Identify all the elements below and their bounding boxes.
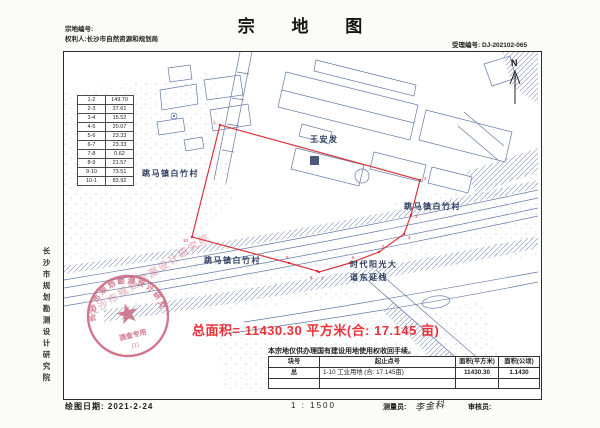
rights-holder: 权利人:长沙市自然资源和规划局 (65, 35, 158, 45)
seal-star (115, 301, 140, 325)
north-label: N (511, 58, 518, 68)
seal-inner-text: 调查专用 (118, 327, 147, 343)
place-label: 跳马镇白竹村 (404, 201, 461, 211)
drawing-date: 绘图日期: 2021-2-24 (65, 401, 153, 412)
col-area-ha: 面积(公顷) (499, 357, 540, 368)
col-area-sqm: 面积(平方米) (456, 357, 499, 368)
cell-area-sqm: 11430.30 (456, 368, 499, 379)
institute-name-vertical: 长沙市规划勘测设计研究院 (41, 247, 52, 385)
segment-row: 8-921.57 (78, 159, 134, 168)
parcel-number-label: 宗地编号: (65, 25, 158, 35)
svg-text:2: 2 (424, 176, 427, 181)
segment-row: 1-2149.70 (78, 96, 134, 105)
summary-empty-row (269, 379, 540, 389)
place-label: 道东延线 (350, 272, 388, 282)
segment-row: 2-327.61 (78, 105, 134, 114)
header-meta-left: 宗地编号: 权利人:长沙市自然资源和规划局 (65, 25, 158, 45)
surveyor-signature: 李金科 (414, 397, 445, 413)
summary-data-row: 总 1-10 工业用地 (合: 17.145亩) 11430.30 1.1430 (269, 368, 540, 379)
parcel-map-document: 宗 地 图 宗地编号: 权利人:长沙市自然资源和规划局 受理编号: DJ-202… (0, 0, 600, 428)
cell-block-no: 总 (269, 368, 320, 379)
cell-area-ha: 1.1430 (499, 368, 540, 379)
segment-length-table: 1-2149.702-327.613-415.524-520.075-623.3… (77, 95, 134, 186)
segment-row: 9-1073.51 (78, 168, 134, 177)
segment-row: 10-183.92 (78, 177, 134, 186)
place-label: 跳马镇白竹村 (204, 255, 261, 265)
segment-row: 5-623.33 (78, 132, 134, 141)
seal-number: (1) (131, 342, 140, 350)
purpose-note: 本宗地仅供办理国有建设用地使用权收回手续。 (268, 346, 415, 356)
parcel-summary-table: 块号 起止点号 面积(平方米) 面积(公顷) 总 1-10 工业用地 (合: 1… (268, 356, 540, 389)
place-label: 时代阳光大 (350, 259, 398, 269)
segment-row: 6-723.33 (78, 141, 134, 150)
segment-row: 7-80.62 (78, 150, 134, 159)
segment-row: 4-520.07 (78, 123, 134, 132)
cell-points: 1-10 工业用地 (合: 17.145亩) (320, 368, 456, 379)
col-block-no: 块号 (269, 357, 320, 368)
segment-row: 3-415.52 (78, 114, 134, 123)
total-area-text: 总面积= 11430.30 平方米(合: 17.145 亩) (192, 320, 439, 339)
map-scale: 1 : 1500 (291, 401, 336, 410)
place-label: 王安发 (310, 134, 339, 144)
acceptance-number: 受理编号: DJ-202102-065 (452, 39, 527, 49)
place-label: 跳马镇白竹村 (142, 168, 199, 178)
col-points: 起止点号 (320, 357, 456, 368)
reviewer-label: 审核员: (468, 402, 491, 412)
surveyor-label: 测量员: (383, 402, 406, 412)
summary-header-row: 块号 起止点号 面积(平方米) 面积(公顷) (269, 357, 540, 368)
